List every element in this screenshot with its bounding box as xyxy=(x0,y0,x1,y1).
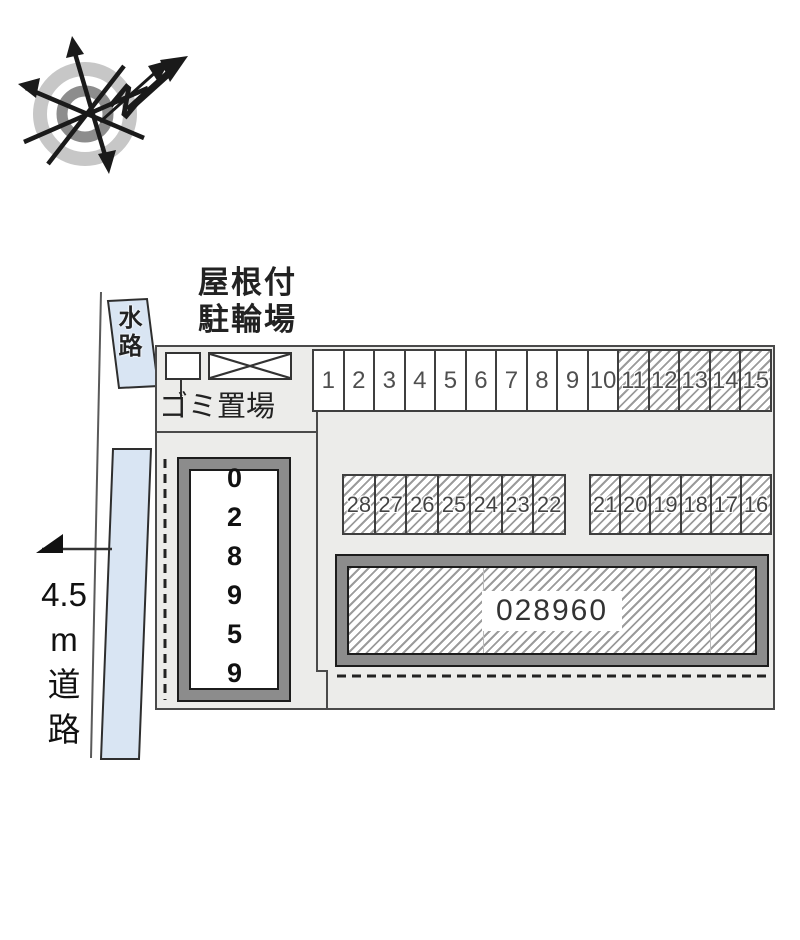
covered-bike-parking-label: 屋根付 駐輪場 xyxy=(198,264,297,338)
parking-space-18: 18 xyxy=(680,476,710,533)
bike-shed-cross-icon xyxy=(210,354,290,378)
building-028960-id: 028960 xyxy=(482,591,622,631)
site-plan-canvas: N 屋根付 駐輪場 水路 4.5 m 道 路 ゴミ置場 123456789101… xyxy=(0,0,800,940)
parking-space-number: 13 xyxy=(681,367,708,395)
building-028960-section-divider xyxy=(710,568,711,653)
parking-space-number: 17 xyxy=(714,492,738,518)
parking-space-number: 4 xyxy=(413,367,426,395)
parking-space-22: 22 xyxy=(532,476,564,533)
building-028960: 028960 xyxy=(335,554,769,667)
parking-space-number: 11 xyxy=(621,367,646,395)
building-028959-interior: 028959 xyxy=(189,469,279,690)
covered-bike-parking-line1: 屋根付 xyxy=(198,264,297,301)
parking-space-number: 19 xyxy=(653,492,677,518)
parking-space-9: 9 xyxy=(556,351,587,410)
parking-space-number: 6 xyxy=(474,367,487,395)
parking-space-number: 28 xyxy=(347,492,371,518)
parking-space-number: 26 xyxy=(410,492,434,518)
parking-space-number: 27 xyxy=(378,492,402,518)
parking-row-middle-left: 28272625242322 xyxy=(342,474,566,535)
road-label-line1: 4.5 xyxy=(26,572,102,617)
parking-space-21: 21 xyxy=(591,476,619,533)
parking-space-20: 20 xyxy=(619,476,649,533)
parking-space-16: 16 xyxy=(740,476,770,533)
parking-space-number: 9 xyxy=(566,367,579,395)
parking-space-number: 5 xyxy=(444,367,457,395)
parking-space-27: 27 xyxy=(374,476,406,533)
parking-space-1: 1 xyxy=(314,351,343,410)
parking-space-number: 1 xyxy=(322,367,335,395)
parking-space-number: 2 xyxy=(352,367,365,395)
parking-space-number: 15 xyxy=(742,367,769,395)
waterway-strip-lower xyxy=(101,449,151,759)
compass-rose: N xyxy=(12,22,197,177)
parking-space-15: 15 xyxy=(739,351,770,410)
parking-space-6: 6 xyxy=(465,351,496,410)
parking-space-19: 19 xyxy=(649,476,679,533)
parking-space-11: 11 xyxy=(617,351,648,410)
road-width-arrowhead xyxy=(36,534,63,553)
parking-row-middle-right: 212019181716 xyxy=(589,474,772,535)
parking-space-number: 10 xyxy=(590,367,617,395)
building-028959: 028959 xyxy=(177,457,291,702)
parking-space-23: 23 xyxy=(501,476,533,533)
parking-space-12: 12 xyxy=(648,351,679,410)
parking-space-number: 14 xyxy=(712,367,739,395)
road-width-label: 4.5 m 道 路 xyxy=(26,572,102,752)
parking-space-10: 10 xyxy=(587,351,618,410)
parking-space-number: 7 xyxy=(505,367,518,395)
parking-space-8: 8 xyxy=(526,351,557,410)
waterway-label: 水路 xyxy=(110,305,145,361)
parking-space-number: 16 xyxy=(744,492,768,518)
parking-space-2: 2 xyxy=(343,351,374,410)
building-028960-interior: 028960 xyxy=(347,566,757,655)
parking-space-7: 7 xyxy=(495,351,526,410)
parking-space-4: 4 xyxy=(404,351,435,410)
parking-space-5: 5 xyxy=(434,351,465,410)
building-028959-id: 028959 xyxy=(219,463,250,697)
parking-row-top: 123456789101112131415 xyxy=(312,349,772,412)
parking-space-24: 24 xyxy=(469,476,501,533)
road-label-line4: 路 xyxy=(26,707,102,752)
parking-space-17: 17 xyxy=(710,476,740,533)
parking-space-number: 18 xyxy=(683,492,707,518)
parking-space-number: 21 xyxy=(593,492,617,518)
parking-space-number: 3 xyxy=(383,367,396,395)
garbage-area-label: ゴミ置場 xyxy=(159,383,275,425)
parking-space-26: 26 xyxy=(405,476,437,533)
parking-space-number: 22 xyxy=(537,492,561,518)
bike-shed-box xyxy=(208,352,292,380)
parking-space-number: 8 xyxy=(535,367,548,395)
parking-space-3: 3 xyxy=(373,351,404,410)
road-label-line2: m xyxy=(26,617,102,662)
parking-space-number: 12 xyxy=(651,367,678,395)
garbage-station-box xyxy=(165,352,201,380)
parking-space-25: 25 xyxy=(437,476,469,533)
parking-space-number: 25 xyxy=(442,492,466,518)
parking-space-number: 24 xyxy=(473,492,497,518)
parking-space-number: 23 xyxy=(505,492,529,518)
covered-bike-parking-line2: 駐輪場 xyxy=(198,301,297,338)
parking-space-28: 28 xyxy=(344,476,374,533)
parking-space-14: 14 xyxy=(709,351,740,410)
road-label-line3: 道 xyxy=(26,662,102,707)
site-map-area: ゴミ置場 123456789101112131415 2827262524232… xyxy=(155,345,775,710)
parking-space-number: 20 xyxy=(623,492,647,518)
parking-space-13: 13 xyxy=(678,351,709,410)
